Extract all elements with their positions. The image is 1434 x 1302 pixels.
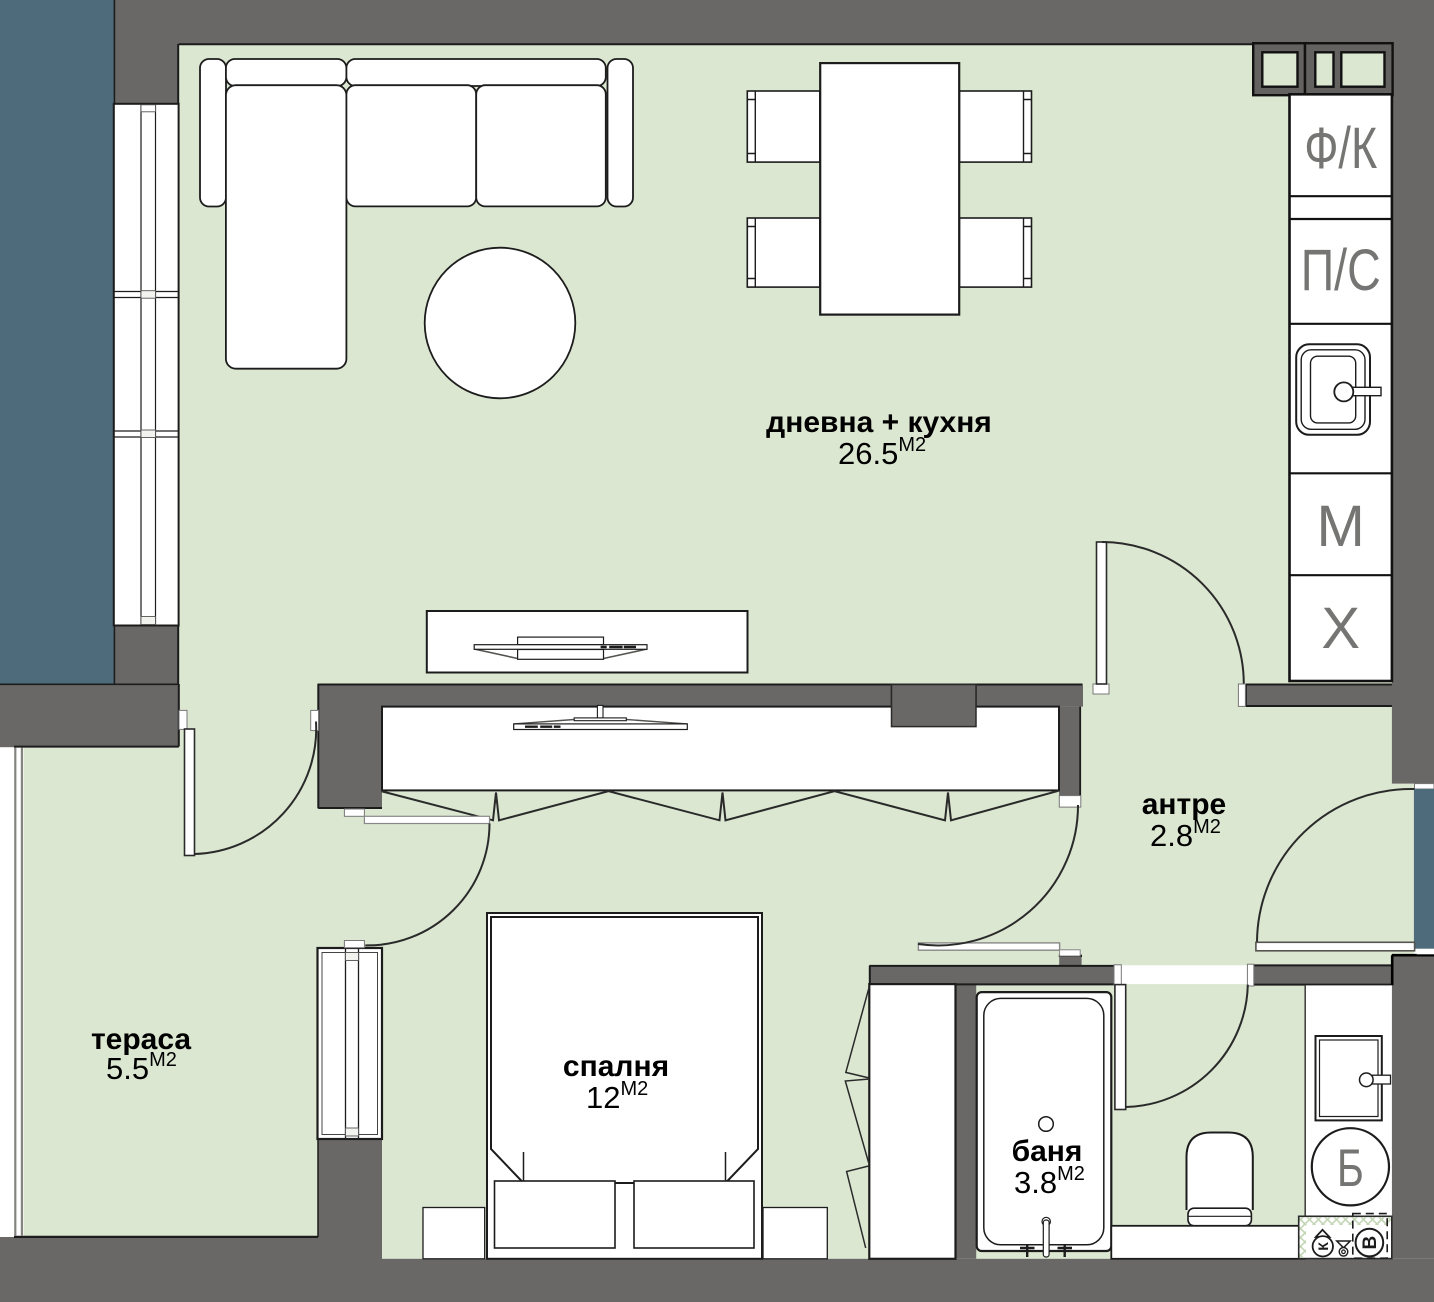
svg-text:Ф/К: Ф/К: [1304, 116, 1377, 181]
svg-text:К: К: [1315, 1242, 1331, 1251]
svg-text:Х: Х: [1321, 596, 1360, 661]
svg-text:М: М: [1317, 494, 1365, 559]
svg-text:дневна + кухня: дневна + кухня: [766, 406, 992, 439]
svg-text:Б: Б: [1337, 1139, 1364, 1198]
svg-text:В: В: [1360, 1236, 1381, 1250]
svg-text:П/С: П/С: [1301, 238, 1381, 303]
svg-text:спалня: спалня: [563, 1050, 669, 1083]
